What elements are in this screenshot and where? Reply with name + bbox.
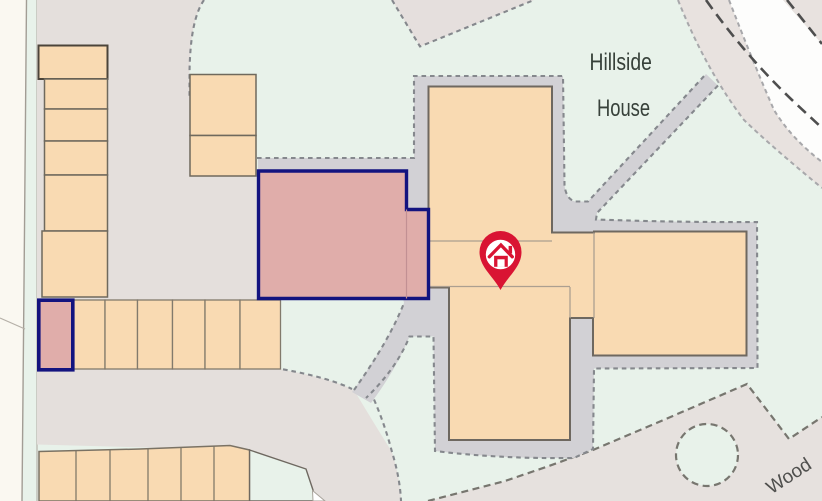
svg-text:Hillside: Hillside: [590, 48, 652, 76]
svg-text:House: House: [597, 93, 650, 121]
